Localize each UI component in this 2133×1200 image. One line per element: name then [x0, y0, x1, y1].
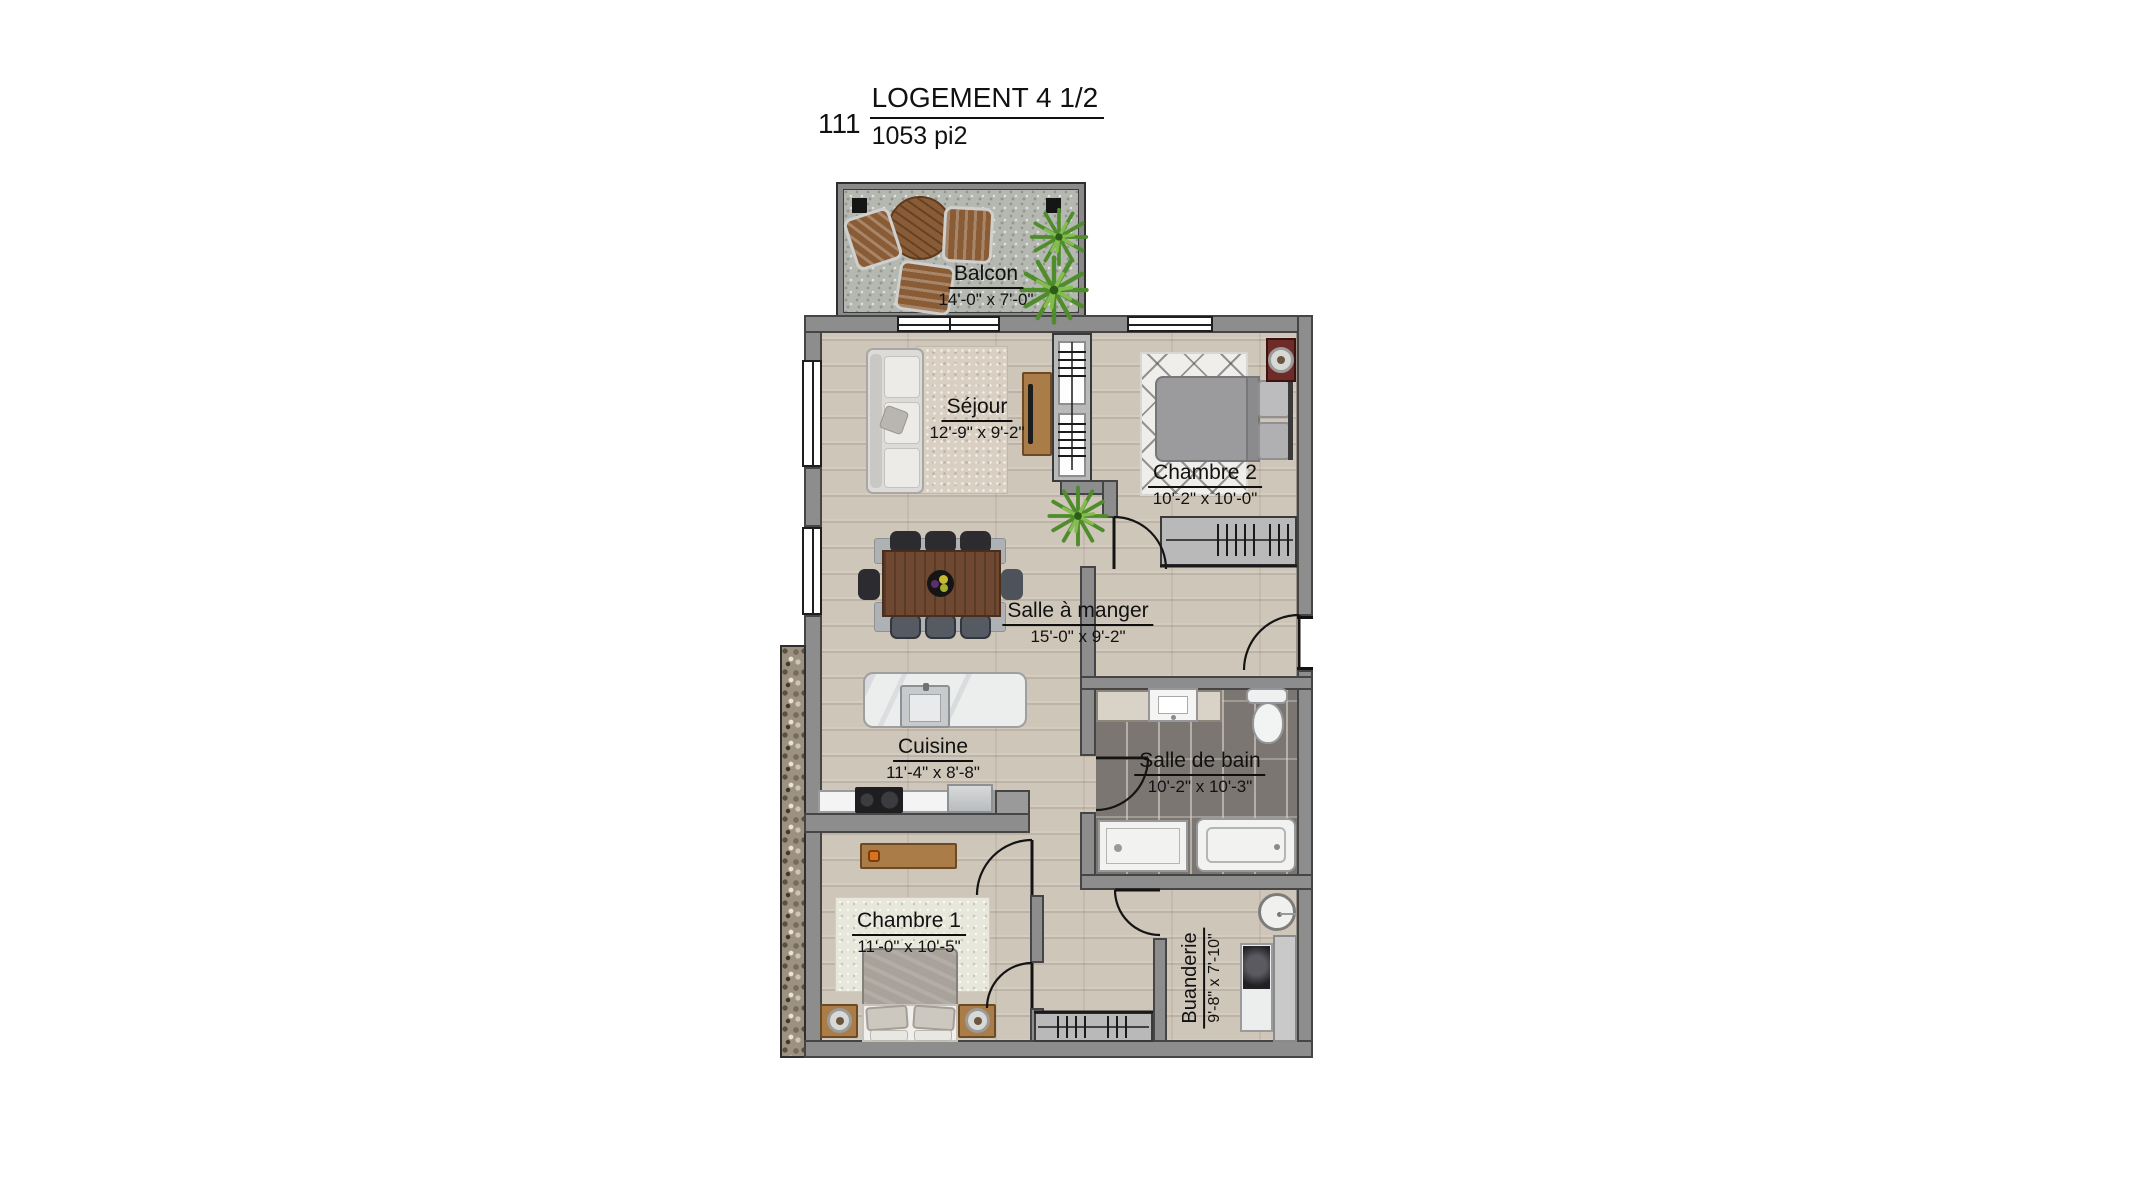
shower: [1098, 820, 1188, 872]
tv: [1028, 384, 1033, 444]
chambre2-pillow: [1258, 422, 1290, 460]
drain: [1171, 715, 1176, 720]
chambre1-pillow: [914, 1030, 952, 1041]
wardrobe-panel: [1058, 413, 1086, 477]
grapes: [931, 580, 939, 588]
dining-chair: [858, 569, 880, 600]
faucet: [1274, 844, 1280, 850]
heater-pipe: [1280, 913, 1296, 915]
wall-buanderie: [1153, 938, 1167, 1042]
unit-number: 111: [818, 94, 861, 140]
fridge: [947, 784, 993, 813]
lamp-center: [974, 1017, 982, 1025]
kitchen-sink: [900, 685, 950, 728]
wall-corridor: [1030, 895, 1044, 963]
closet-chambre2: [1160, 516, 1297, 566]
faucet: [923, 683, 929, 691]
wall-top: [804, 315, 1313, 333]
wall-hall-bath: [1080, 566, 1096, 756]
wardrobe-panel: [1058, 341, 1086, 405]
chambre2-headboard: [1288, 378, 1293, 460]
sofa: [866, 348, 924, 494]
wall-right: [1297, 670, 1313, 1058]
wall-bath-bottom: [1080, 874, 1313, 890]
lamp-center: [836, 1017, 844, 1025]
balcony-post: [852, 198, 867, 213]
chambre1-pillow: [865, 1005, 909, 1032]
chambre2-bed-duvet: [1155, 376, 1248, 462]
unit-type-label: LOGEMENT 4 1/2: [870, 82, 1105, 119]
utility-cabinet: [1273, 935, 1297, 1042]
drain: [1114, 844, 1122, 852]
lamp-center: [1277, 356, 1285, 364]
chambre1-pillow: [912, 1005, 956, 1032]
patio-chair: [942, 206, 995, 265]
wall-bottom: [804, 1040, 1313, 1058]
room-label-sejour: Séjour 12'-9" x 9'-2": [929, 396, 1024, 442]
sink-basin: [909, 694, 941, 722]
patio-door: [897, 316, 1000, 332]
dining-chair: [960, 614, 991, 639]
washer-dryer: [1240, 943, 1273, 1032]
window-mullion: [949, 318, 951, 330]
title-block: 111 LOGEMENT 4 1/2 1053 pi2: [818, 82, 1104, 151]
wall-kitchen-chambre1: [804, 813, 1030, 833]
room-label-buanderie: Buanderie 9'-8" x 7'-10": [1180, 927, 1224, 1028]
washer-glass-door: [1243, 946, 1270, 989]
title-fraction: LOGEMENT 4 1/2 1053 pi2: [870, 82, 1105, 151]
window-sejour-1: [802, 360, 822, 467]
toilet-bowl: [1252, 702, 1284, 744]
chambre1-pillow: [870, 1030, 908, 1041]
wall-right: [1297, 315, 1313, 616]
room-label-salle-a-manger: Salle à manger 15'-0" x 9'-2": [1002, 600, 1153, 646]
dining-chair: [1001, 569, 1023, 600]
dining-chair: [890, 614, 921, 639]
fruit: [939, 575, 948, 584]
counter-return: [995, 790, 1030, 815]
fruit: [940, 584, 948, 592]
water-heater: [1258, 893, 1296, 931]
vanity-sink: [1148, 688, 1198, 722]
tv-console: [1022, 372, 1052, 456]
window-chambre2: [1127, 316, 1213, 332]
chambre1-bed-duvet: [862, 948, 958, 1008]
wall-left-pier: [804, 467, 822, 527]
window-mullion: [1129, 324, 1211, 326]
dresser-lamp: [868, 850, 880, 862]
table-lamp: [1268, 347, 1294, 373]
room-label-cuisine: Cuisine 11'-4" x 8'-8": [886, 736, 980, 782]
window-mullion: [812, 529, 814, 613]
table-lamp: [827, 1008, 852, 1033]
window-sejour-2: [802, 527, 822, 615]
wardrobe-sejour-chambre2: [1052, 333, 1092, 482]
stove: [855, 787, 903, 813]
bathtub: [1196, 818, 1296, 872]
closet-corridor: [1034, 1012, 1153, 1042]
fruit-bowl: [927, 570, 954, 597]
sink-basin: [1158, 696, 1188, 714]
wall-stub-vertical: [1102, 480, 1118, 518]
unit-area-label: 1053 pi2: [870, 119, 1105, 151]
exterior-stone-wall: [780, 645, 806, 1058]
sofa-cushion: [884, 356, 920, 398]
sofa-cushion: [884, 448, 920, 488]
wall-stub-horizontal: [1060, 480, 1108, 495]
room-label-chambre2: Chambre 2 10'-2" x 10'-0": [1148, 462, 1262, 508]
room-label-chambre1: Chambre 1 11'-0" x 10'-5": [852, 910, 966, 956]
entrance-opening: [1297, 616, 1313, 670]
chambre2-pillow: [1258, 380, 1290, 418]
table-lamp: [965, 1008, 990, 1033]
floor-plan-page: 111 LOGEMENT 4 1/2 1053 pi2: [0, 0, 2133, 1200]
wall-left: [804, 331, 822, 362]
window-mullion: [812, 362, 814, 465]
room-label-salle-de-bain: Salle de bain 10'-2" x 10'-3": [1134, 750, 1265, 796]
dresser: [860, 843, 957, 869]
balcony-post: [1046, 198, 1061, 213]
dining-chair: [925, 614, 956, 639]
room-label-balcon: Balcon 14'-0" x 7'-0": [938, 263, 1033, 309]
